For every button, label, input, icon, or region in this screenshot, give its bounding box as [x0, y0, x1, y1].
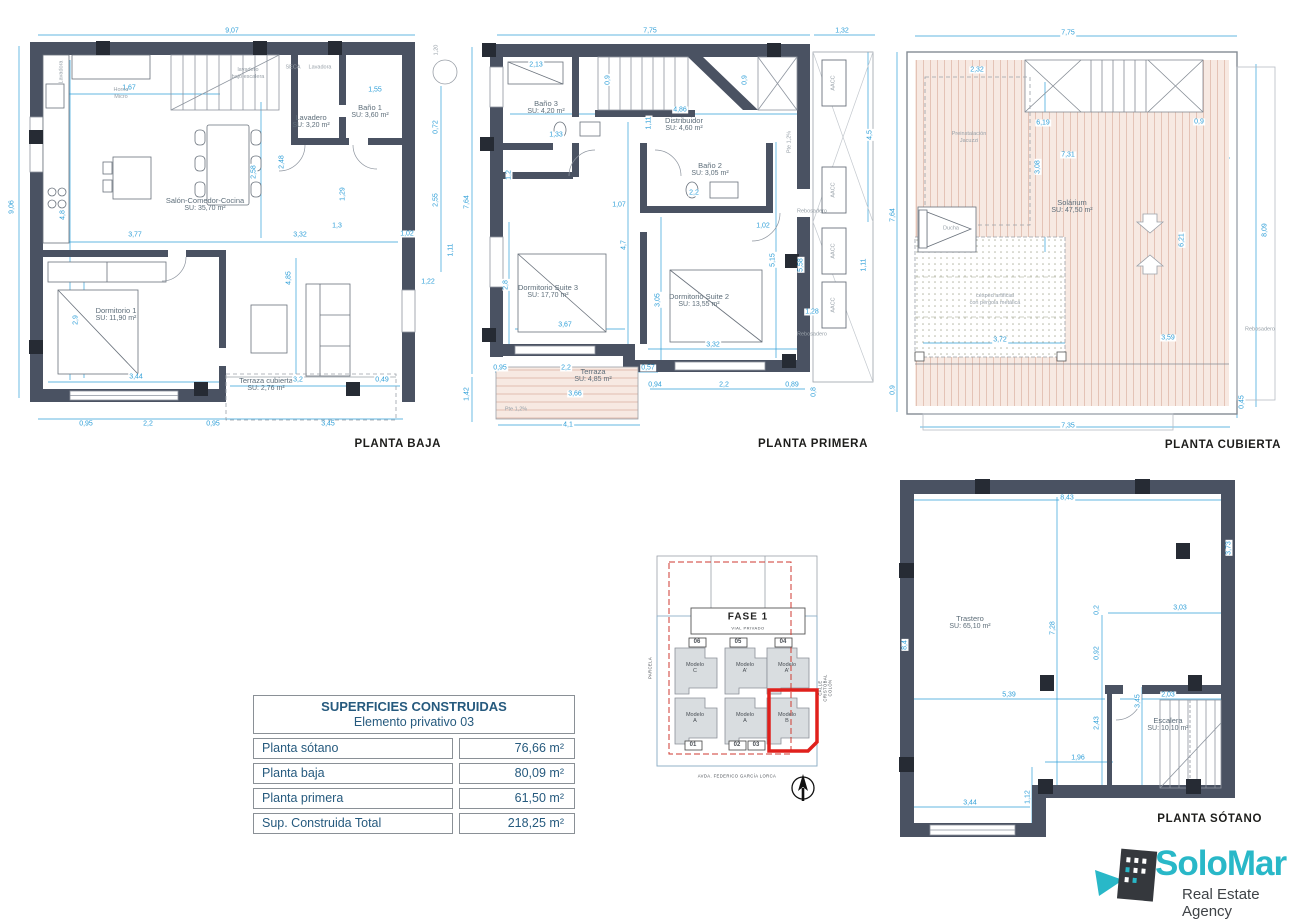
reference-circle: [433, 60, 457, 84]
plan-sheet: Salón-Comedor-CocinaSU: 35,70 m²Lavadero…: [0, 0, 1300, 919]
vial-privado-label: VIAL PRIVADO: [731, 626, 764, 631]
terrace-outline: [226, 374, 396, 420]
model-a2-label: Modelo A': [778, 662, 796, 674]
agency-logo-icon: [1091, 844, 1159, 910]
aacc-zone: [813, 52, 873, 382]
stairwell: [1025, 60, 1203, 112]
window: [930, 825, 1015, 835]
surfaces-table-title: SUPERFICIES CONSTRUIDAS: [254, 699, 574, 714]
surfaces-table: SUPERFICIES CONSTRUIDAS Elemento privati…: [253, 695, 575, 834]
table-row: Planta sótano 76,66 m²: [253, 738, 575, 759]
model-a4-label: Modelo A: [736, 712, 754, 724]
surfaces-table-header: SUPERFICIES CONSTRUIDAS Elemento privati…: [253, 695, 575, 734]
row-value: 218,25 m²: [459, 813, 575, 834]
plan-title-cubierta: PLANTA CUBIERTA: [1165, 439, 1281, 451]
model-a1-label: Modelo A': [736, 662, 754, 674]
plot-01-badge: 01: [690, 742, 697, 748]
table-row: Sup. Construida Total 218,25 m²: [253, 813, 575, 834]
structural-piers: [899, 479, 1202, 794]
row-label: Planta sótano: [253, 738, 453, 759]
table-row: Planta primera 61,50 m²: [253, 788, 575, 809]
plot-04-badge: 04: [780, 639, 787, 645]
floor-plan-primera-drawing: [460, 22, 880, 460]
row-value: 76,66 m²: [459, 738, 575, 759]
floor-plan-sotano: TrasteroSU: 65,10 m²EscaleraSU: 10,10 m²…: [880, 455, 1300, 850]
fase-label: FASE 1: [728, 612, 768, 623]
row-value: 61,50 m²: [459, 788, 575, 809]
artificial-grass: [915, 237, 1065, 357]
row-label: Planta primera: [253, 788, 453, 809]
model-b-label: Modelo B: [778, 712, 796, 724]
logo-building: [1117, 849, 1157, 902]
plan-title-sotano: PLANTA SÓTANO: [1157, 813, 1262, 825]
kitchen-furniture: [43, 55, 151, 243]
surfaces-table-subtitle: Elemento privativo 03: [254, 715, 574, 729]
stairs: [1160, 700, 1221, 788]
model-c-label: Modelo C: [686, 662, 704, 674]
door-arcs: [162, 145, 377, 281]
door-arcs: [569, 150, 780, 241]
site-plan: FASE 1 VIAL PRIVADO Modelo C Modelo A' M…: [645, 548, 840, 806]
plot-06-badge: 06: [694, 639, 701, 645]
row-label: Sup. Construida Total: [253, 813, 453, 834]
north-arrow: [792, 774, 814, 801]
table-row: Planta baja 80,09 m²: [253, 763, 575, 784]
furniture: [508, 62, 762, 342]
shower: [918, 207, 976, 252]
floor-plan-cubierta: SoláriumSU: 47,50 m²7,752,326,190,97,313…: [885, 22, 1295, 465]
bedroom-living-furniture: [48, 262, 350, 376]
plot-03-badge: 03: [753, 742, 760, 748]
model-a3-label: Modelo A: [686, 712, 704, 724]
door-arc: [1116, 694, 1142, 720]
agency-tagline: Real Estate Agency: [1182, 886, 1297, 919]
floor-plan-baja: Salón-Comedor-CocinaSU: 35,70 m²Lavadero…: [8, 22, 463, 457]
street-bottom-label: AVDA. FEDERICO GARCÍA LORCA: [698, 774, 776, 779]
agency-logo: SoloMar Real Estate Agency: [1097, 842, 1297, 916]
plot-02-badge: 02: [734, 742, 741, 748]
dining-furniture: [195, 125, 261, 205]
site-plan-drawing: [645, 548, 840, 806]
plan-title-primera: PLANTA PRIMERA: [758, 438, 868, 450]
plot-05-badge: 05: [735, 639, 742, 645]
stairs: [171, 55, 279, 110]
street-right-label: CALLE CRISTÓBAL COLÓN: [818, 674, 833, 701]
floor-plan-cubierta-drawing: [885, 22, 1295, 465]
floor-plan-primera: Baño 3SU: 4,20 m²DistribuidorSU: 4,60 m²…: [460, 22, 880, 460]
walls: [900, 480, 1235, 837]
row-label: Planta baja: [253, 763, 453, 784]
plan-title-baja: PLANTA BAJA: [355, 438, 441, 450]
row-value: 80,09 m²: [459, 763, 575, 784]
floor-plan-baja-drawing: [8, 22, 463, 457]
floor-plan-sotano-drawing: [880, 455, 1300, 850]
agency-name: SoloMar: [1155, 844, 1286, 884]
street-left-label: PARCELA: [648, 657, 653, 679]
terrace-pergola: [496, 367, 638, 419]
